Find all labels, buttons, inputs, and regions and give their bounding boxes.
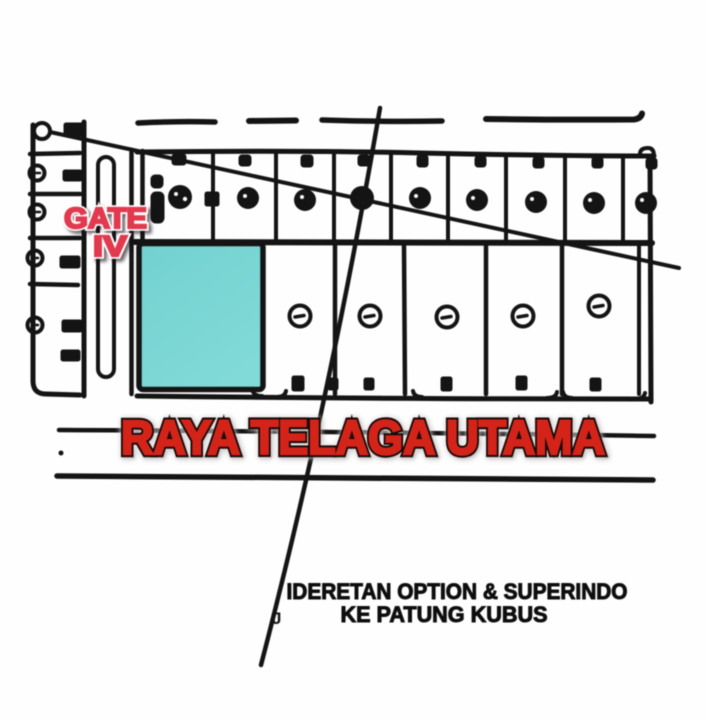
svg-text:J: J: [272, 609, 281, 628]
svg-text:IDERETAN OPTION & SUPERINDO: IDERETAN OPTION & SUPERINDO: [287, 579, 628, 604]
svg-text:KE PATUNG KUBUS: KE PATUNG KUBUS: [341, 602, 548, 627]
svg-text:RAYA TELAGA UTAMA: RAYA TELAGA UTAMA: [121, 412, 605, 465]
svg-text:IV: IV: [93, 231, 128, 263]
